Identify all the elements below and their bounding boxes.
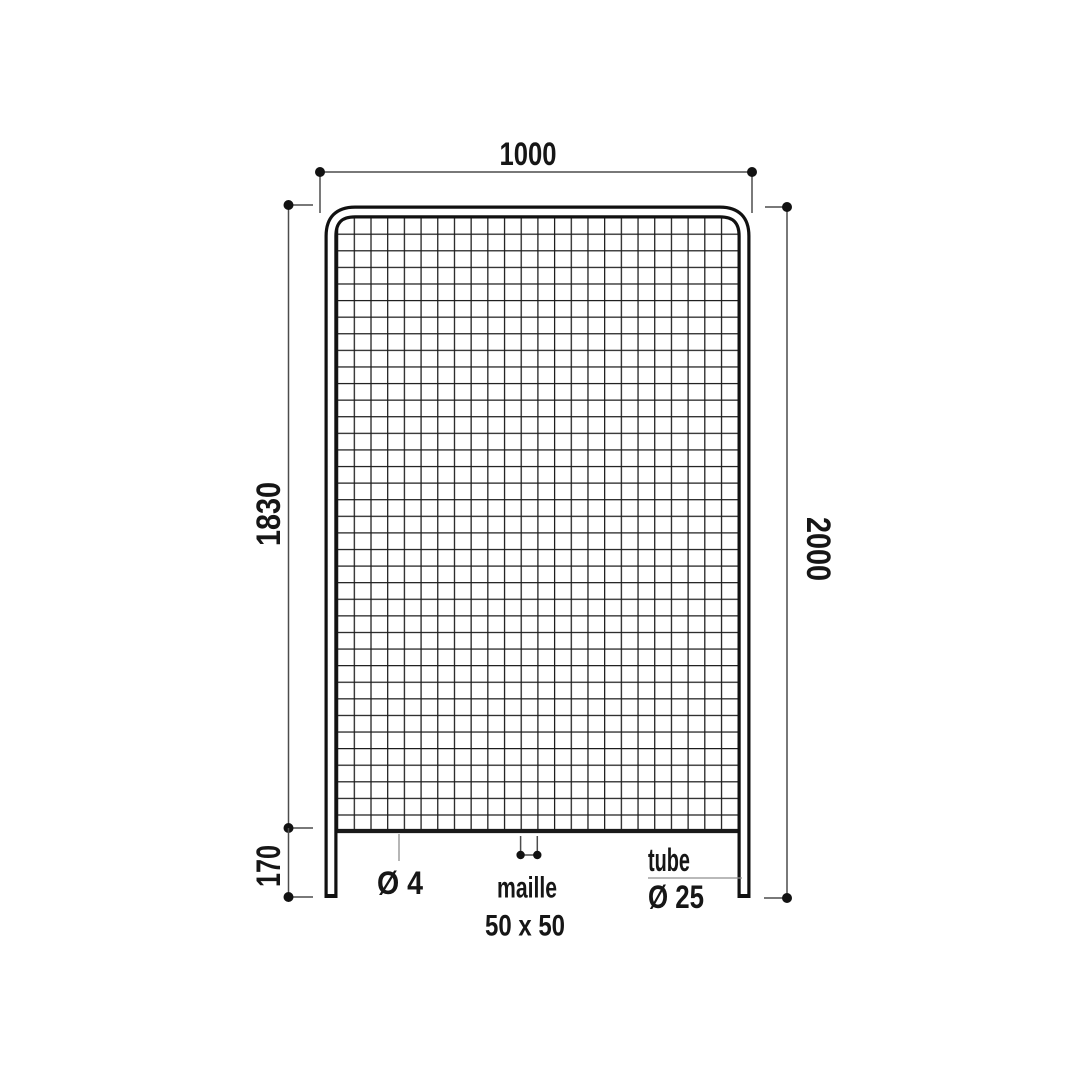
- dimension-dot: [782, 202, 792, 212]
- dimension-dot: [533, 851, 541, 859]
- dimension-dot: [747, 167, 757, 177]
- dimension-dot: [315, 167, 325, 177]
- callout-tube-diameter: tube Ø 25: [648, 842, 742, 915]
- mesh-grid: [337, 217, 738, 832]
- fence-panel-drawing: 1000 1830 170 2000 Ø 4 maille 5: [0, 0, 1080, 1080]
- dimension-overall-width: 1000: [315, 136, 757, 213]
- dimension-dot: [516, 851, 524, 859]
- dimension-dot: [782, 893, 792, 903]
- overall-width-label: 1000: [500, 136, 557, 172]
- dimension-dot: [284, 892, 294, 902]
- mesh-wires: [337, 217, 738, 832]
- callout-mesh-size: maille 50 x 50: [485, 836, 565, 943]
- ground-clearance-label: 170: [250, 845, 288, 887]
- mesh-size-label: 50 x 50: [485, 910, 565, 943]
- callout-wire-diameter: Ø 4: [377, 834, 423, 901]
- overall-height-label: 2000: [799, 517, 837, 581]
- tube-word-label: tube: [648, 842, 690, 878]
- wire-diameter-label: Ø 4: [377, 865, 423, 901]
- mesh-height-label: 1830: [250, 482, 288, 546]
- dimension-dot: [284, 200, 294, 210]
- mesh-word-label: maille: [497, 872, 557, 905]
- drawing-page: 1000 1830 170 2000 Ø 4 maille 5: [0, 0, 1080, 1080]
- dimension-mesh-height: 1830: [250, 200, 313, 833]
- dimension-ground-clearance: 170: [250, 828, 313, 902]
- tube-diameter-label: Ø 25: [648, 879, 704, 915]
- dimension-overall-height: 2000: [764, 202, 837, 903]
